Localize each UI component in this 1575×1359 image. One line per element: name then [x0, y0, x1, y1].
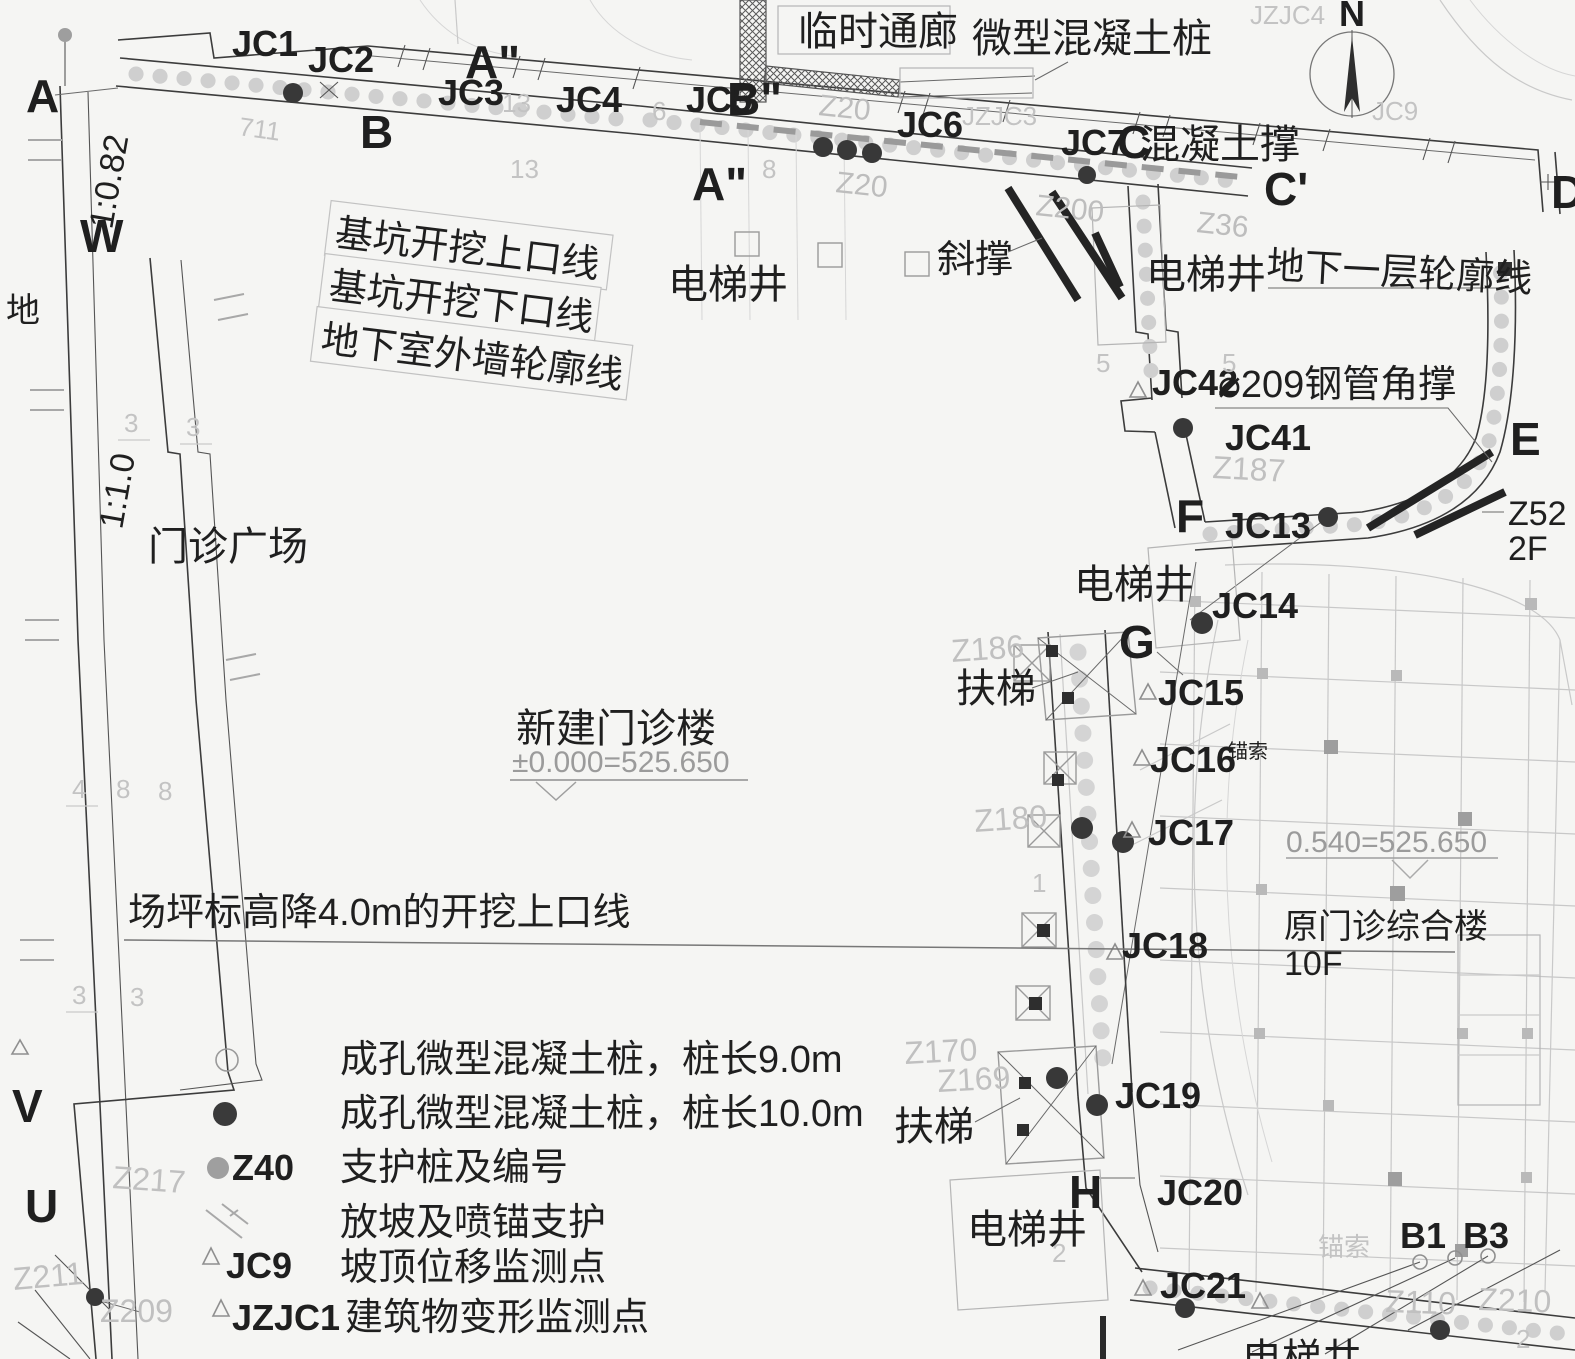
section-b: B [360, 106, 393, 158]
label-plaza: 门诊广场 [148, 525, 308, 569]
section-g: G [1119, 616, 1155, 668]
label-2f: 2F [1508, 530, 1548, 568]
legend-filled-pile-icon [213, 1102, 237, 1126]
drawing-canvas: N 基坑开挖上口线 基坑开挖下口线 地下室外墙轮廓线 A A" A" B B" … [0, 0, 1575, 1359]
faint-jzjc3: JZJC3 [962, 101, 1037, 131]
section-a: A [26, 70, 59, 122]
label-elevator-1: 电梯井 [668, 263, 788, 307]
faint-2a: 2 [1052, 1238, 1066, 1268]
legend-label-6: 建筑物变形监测点 [345, 1297, 649, 1339]
label-jc15: JC15 [1158, 672, 1244, 713]
legend-code-6: JZJC1 [232, 1297, 340, 1338]
faint-6: 6 [652, 96, 666, 126]
label-jc1: JC1 [232, 23, 298, 64]
legend-triangle-icon-2 [213, 1300, 229, 1316]
faint-3a: 3 [124, 408, 138, 438]
faint-z211: Z211 [11, 1255, 84, 1297]
label-temp-corridor: 临时通廊 [798, 10, 958, 54]
section-d: D [1551, 166, 1575, 218]
label-jc5: JC5 [686, 79, 752, 120]
legend-label-5: 坡顶位移监测点 [340, 1247, 606, 1289]
column-footing [818, 243, 842, 267]
faint-anchor: 锚索 [1318, 1232, 1370, 1262]
section-f: F [1176, 490, 1204, 542]
faint-z110: Z110 [1385, 1283, 1457, 1321]
legend-slope-icon [206, 1204, 248, 1238]
label-slope-1: 1:0.82 [82, 132, 136, 232]
label-jc21: JC21 [1160, 1265, 1246, 1306]
label-ground-level: 0.540=525.650 [1286, 826, 1487, 859]
label-jc18: JC18 [1122, 925, 1208, 966]
label-escalator-1: 扶梯 [956, 667, 1036, 711]
faint-3c: 3 [72, 980, 86, 1010]
legend-code-3: Z40 [232, 1147, 294, 1188]
label-jc16: JC16 [1150, 739, 1236, 780]
faint-13b: 13 [510, 154, 539, 184]
faint-8a: 8 [762, 154, 776, 184]
label-elevator-3: 电梯井 [1074, 563, 1194, 607]
faint-8b: 8 [116, 774, 130, 804]
label-new-building-level: ±0.000=525.650 [512, 746, 730, 779]
faint-z187: Z187 [1212, 449, 1287, 489]
micro-pile-leader [1035, 62, 1068, 80]
label-jc2: JC2 [308, 39, 374, 80]
faint-z217: Z217 [112, 1159, 187, 1200]
faint-8c: 8 [158, 776, 172, 806]
faint-3b: 3 [186, 412, 200, 442]
faint-5b: 5 [1222, 348, 1236, 378]
faint-z210: Z210 [1478, 1281, 1552, 1320]
faint-jc9: JC9 [1372, 96, 1418, 126]
label-jc19: JC19 [1115, 1075, 1201, 1116]
escalator-leader-2 [975, 1098, 1020, 1122]
label-elevator-2: 电梯井 [1146, 253, 1266, 297]
site-cut-underline [124, 940, 1455, 952]
faint-3d: 3 [130, 982, 144, 1012]
level-symbol-main [510, 780, 748, 800]
stair-ladder [1458, 935, 1540, 1105]
faint-13a: 13 [502, 88, 531, 118]
label-anchor-cable: 锚索 [1228, 740, 1268, 763]
label-diagonal-brace: 斜撑 [937, 239, 1013, 281]
label-ground-char: 地 [6, 292, 40, 330]
site-plan-drawing: N 基坑开挖上口线 基坑开挖下口线 地下室外墙轮廓线 A A" A" B B" … [0, 0, 1575, 1359]
label-jc6: JC6 [897, 104, 963, 145]
label-b3: B3 [1463, 1215, 1509, 1256]
label-jc3: JC3 [438, 72, 504, 113]
legend-label-1: 成孔微型混凝土桩，桩长9.0m [340, 1039, 842, 1081]
label-escalator-2: 扶梯 [894, 1105, 974, 1149]
faint-2b: 2 [1516, 1324, 1530, 1354]
label-concrete-brace: 混凝土撑 [1140, 123, 1300, 167]
label-old-building: 原门诊综合楼 [1284, 908, 1488, 946]
label-jc7: JC7 [1061, 122, 1127, 163]
label-z52: Z52 [1508, 495, 1567, 533]
faint-z169: Z169 [936, 1059, 1011, 1099]
survey-dot [58, 28, 72, 42]
legend-triangle-icon-1 [203, 1248, 219, 1264]
upper-elevator-shaft-wall [700, 125, 1205, 528]
legend-label-2: 成孔微型混凝土桩，桩长10.0m [340, 1093, 864, 1135]
label-elevator-5: 电梯井 [1242, 1337, 1362, 1359]
label-steel-pipe-brace: ⌀209钢管角撑 [1218, 364, 1456, 406]
label-jc4: JC4 [556, 79, 622, 120]
faint-z186: Z186 [950, 628, 1025, 669]
label-slope-2: 1:1.0 [92, 450, 143, 531]
label-old-building-floors: 10F [1284, 945, 1343, 983]
label-b1: B1 [1400, 1215, 1446, 1256]
section-c-prime: C' [1264, 163, 1308, 215]
label-basement-outline: 地下一层轮廓线 [1266, 245, 1534, 301]
label-micro-pile: 微型混凝土桩 [972, 17, 1212, 61]
legend-support-pile-icon [207, 1157, 229, 1179]
faint-4: 4 [72, 774, 86, 804]
legend-label-4: 放坡及喷锚支护 [340, 1202, 606, 1244]
faint-z20a: Z20 [817, 89, 872, 127]
faint-z209: Z209 [100, 1293, 173, 1329]
escalator-leader [1032, 672, 1078, 688]
faint-jzjc4: JZJC4 [1250, 0, 1325, 30]
faint-z36: Z36 [1195, 206, 1250, 244]
section-v: V [12, 1080, 43, 1132]
label-jc13: JC13 [1225, 505, 1311, 546]
legend-label-3: 支护桩及编号 [340, 1147, 568, 1189]
faint-z20b: Z20 [834, 166, 889, 204]
label-elevator-4: 电梯井 [967, 1208, 1087, 1252]
level-symbol-ground [1286, 858, 1498, 878]
north-label: N [1339, 0, 1365, 34]
faint-z200: Z200 [1034, 189, 1105, 229]
legend-code-5: JC9 [226, 1245, 292, 1286]
label-new-building: 新建门诊楼 [516, 707, 716, 751]
label-jc14: JC14 [1212, 585, 1298, 626]
column-footing [735, 232, 759, 256]
section-a-mid: A" [692, 158, 747, 210]
faint-711: 711 [237, 111, 282, 146]
label-jc17: JC17 [1148, 812, 1234, 853]
faint-5a: 5 [1096, 348, 1110, 378]
faint-1: 1 [1032, 868, 1046, 898]
column-footing [905, 252, 929, 276]
label-site-cut-line: 场坪标高降4.0m的开挖上口线 [128, 892, 630, 934]
section-u: U [25, 1180, 58, 1232]
section-e: E [1510, 413, 1541, 465]
legend: 成孔微型混凝土桩，桩长9.0m 成孔微型混凝土桩，桩长10.0m Z40 支护桩… [203, 1039, 864, 1339]
label-jc20: JC20 [1157, 1172, 1243, 1213]
faint-z180: Z180 [973, 798, 1048, 839]
